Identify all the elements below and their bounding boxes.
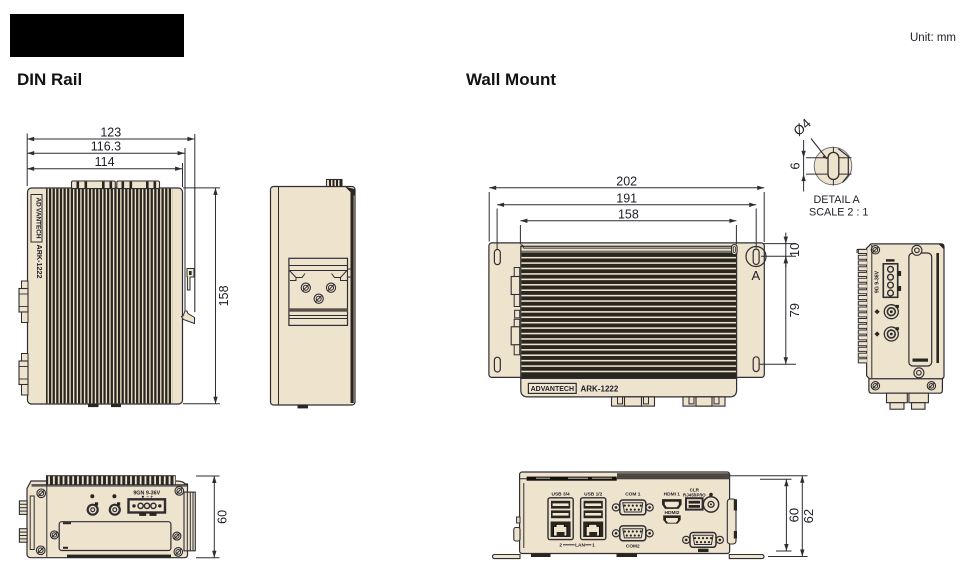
svg-text:COM2: COM2 [626, 544, 640, 550]
svg-text:9G 9-36V: 9G 9-36V [875, 270, 881, 293]
svg-text:ARK-1222: ARK-1222 [581, 384, 619, 393]
svg-text:Wall Mount: Wall Mount [466, 70, 556, 89]
svg-text:RJ45/IP/IO: RJ45/IP/IO [683, 492, 706, 497]
svg-text:ADVANTECH: ADVANTECH [531, 386, 574, 393]
svg-text:DETAIL A: DETAIL A [814, 194, 861, 206]
svg-text:LAN: LAN [575, 543, 585, 549]
svg-text:60: 60 [786, 508, 801, 522]
svg-text:6: 6 [787, 162, 802, 169]
svg-text:62: 62 [801, 509, 816, 523]
svg-text:DIN Rail: DIN Rail [17, 70, 82, 89]
svg-text:AD VANTECH: AD VANTECH [35, 198, 42, 239]
svg-text:60: 60 [216, 510, 230, 524]
svg-text:1: 1 [592, 543, 595, 549]
svg-text:158: 158 [618, 207, 639, 221]
svg-text:HDMI 1: HDMI 1 [664, 491, 681, 497]
svg-text:SCALE 2 : 1: SCALE 2 : 1 [809, 206, 868, 218]
svg-text:A: A [751, 268, 760, 283]
svg-text:158: 158 [217, 285, 231, 306]
svg-text:USB 1/2: USB 1/2 [584, 491, 602, 497]
svg-text:COM 1: COM 1 [625, 491, 641, 497]
svg-text:10: 10 [787, 243, 802, 257]
svg-text:202: 202 [616, 174, 637, 188]
svg-text:ARK-1222: ARK-1222 [35, 245, 44, 279]
svg-text:Unit: mm: Unit: mm [910, 32, 956, 44]
svg-text:116.3: 116.3 [91, 140, 121, 154]
svg-text:USB 3/4: USB 3/4 [552, 491, 570, 497]
svg-text:191: 191 [616, 191, 637, 205]
svg-text:2: 2 [559, 543, 562, 549]
svg-text:▼ − +: ▼ − + [141, 495, 154, 500]
svg-text:79: 79 [787, 303, 802, 317]
svg-text:HDMI2: HDMI2 [665, 510, 680, 516]
svg-text:114: 114 [95, 155, 115, 169]
svg-text:Ø4: Ø4 [790, 115, 814, 139]
svg-text:123: 123 [100, 126, 121, 140]
